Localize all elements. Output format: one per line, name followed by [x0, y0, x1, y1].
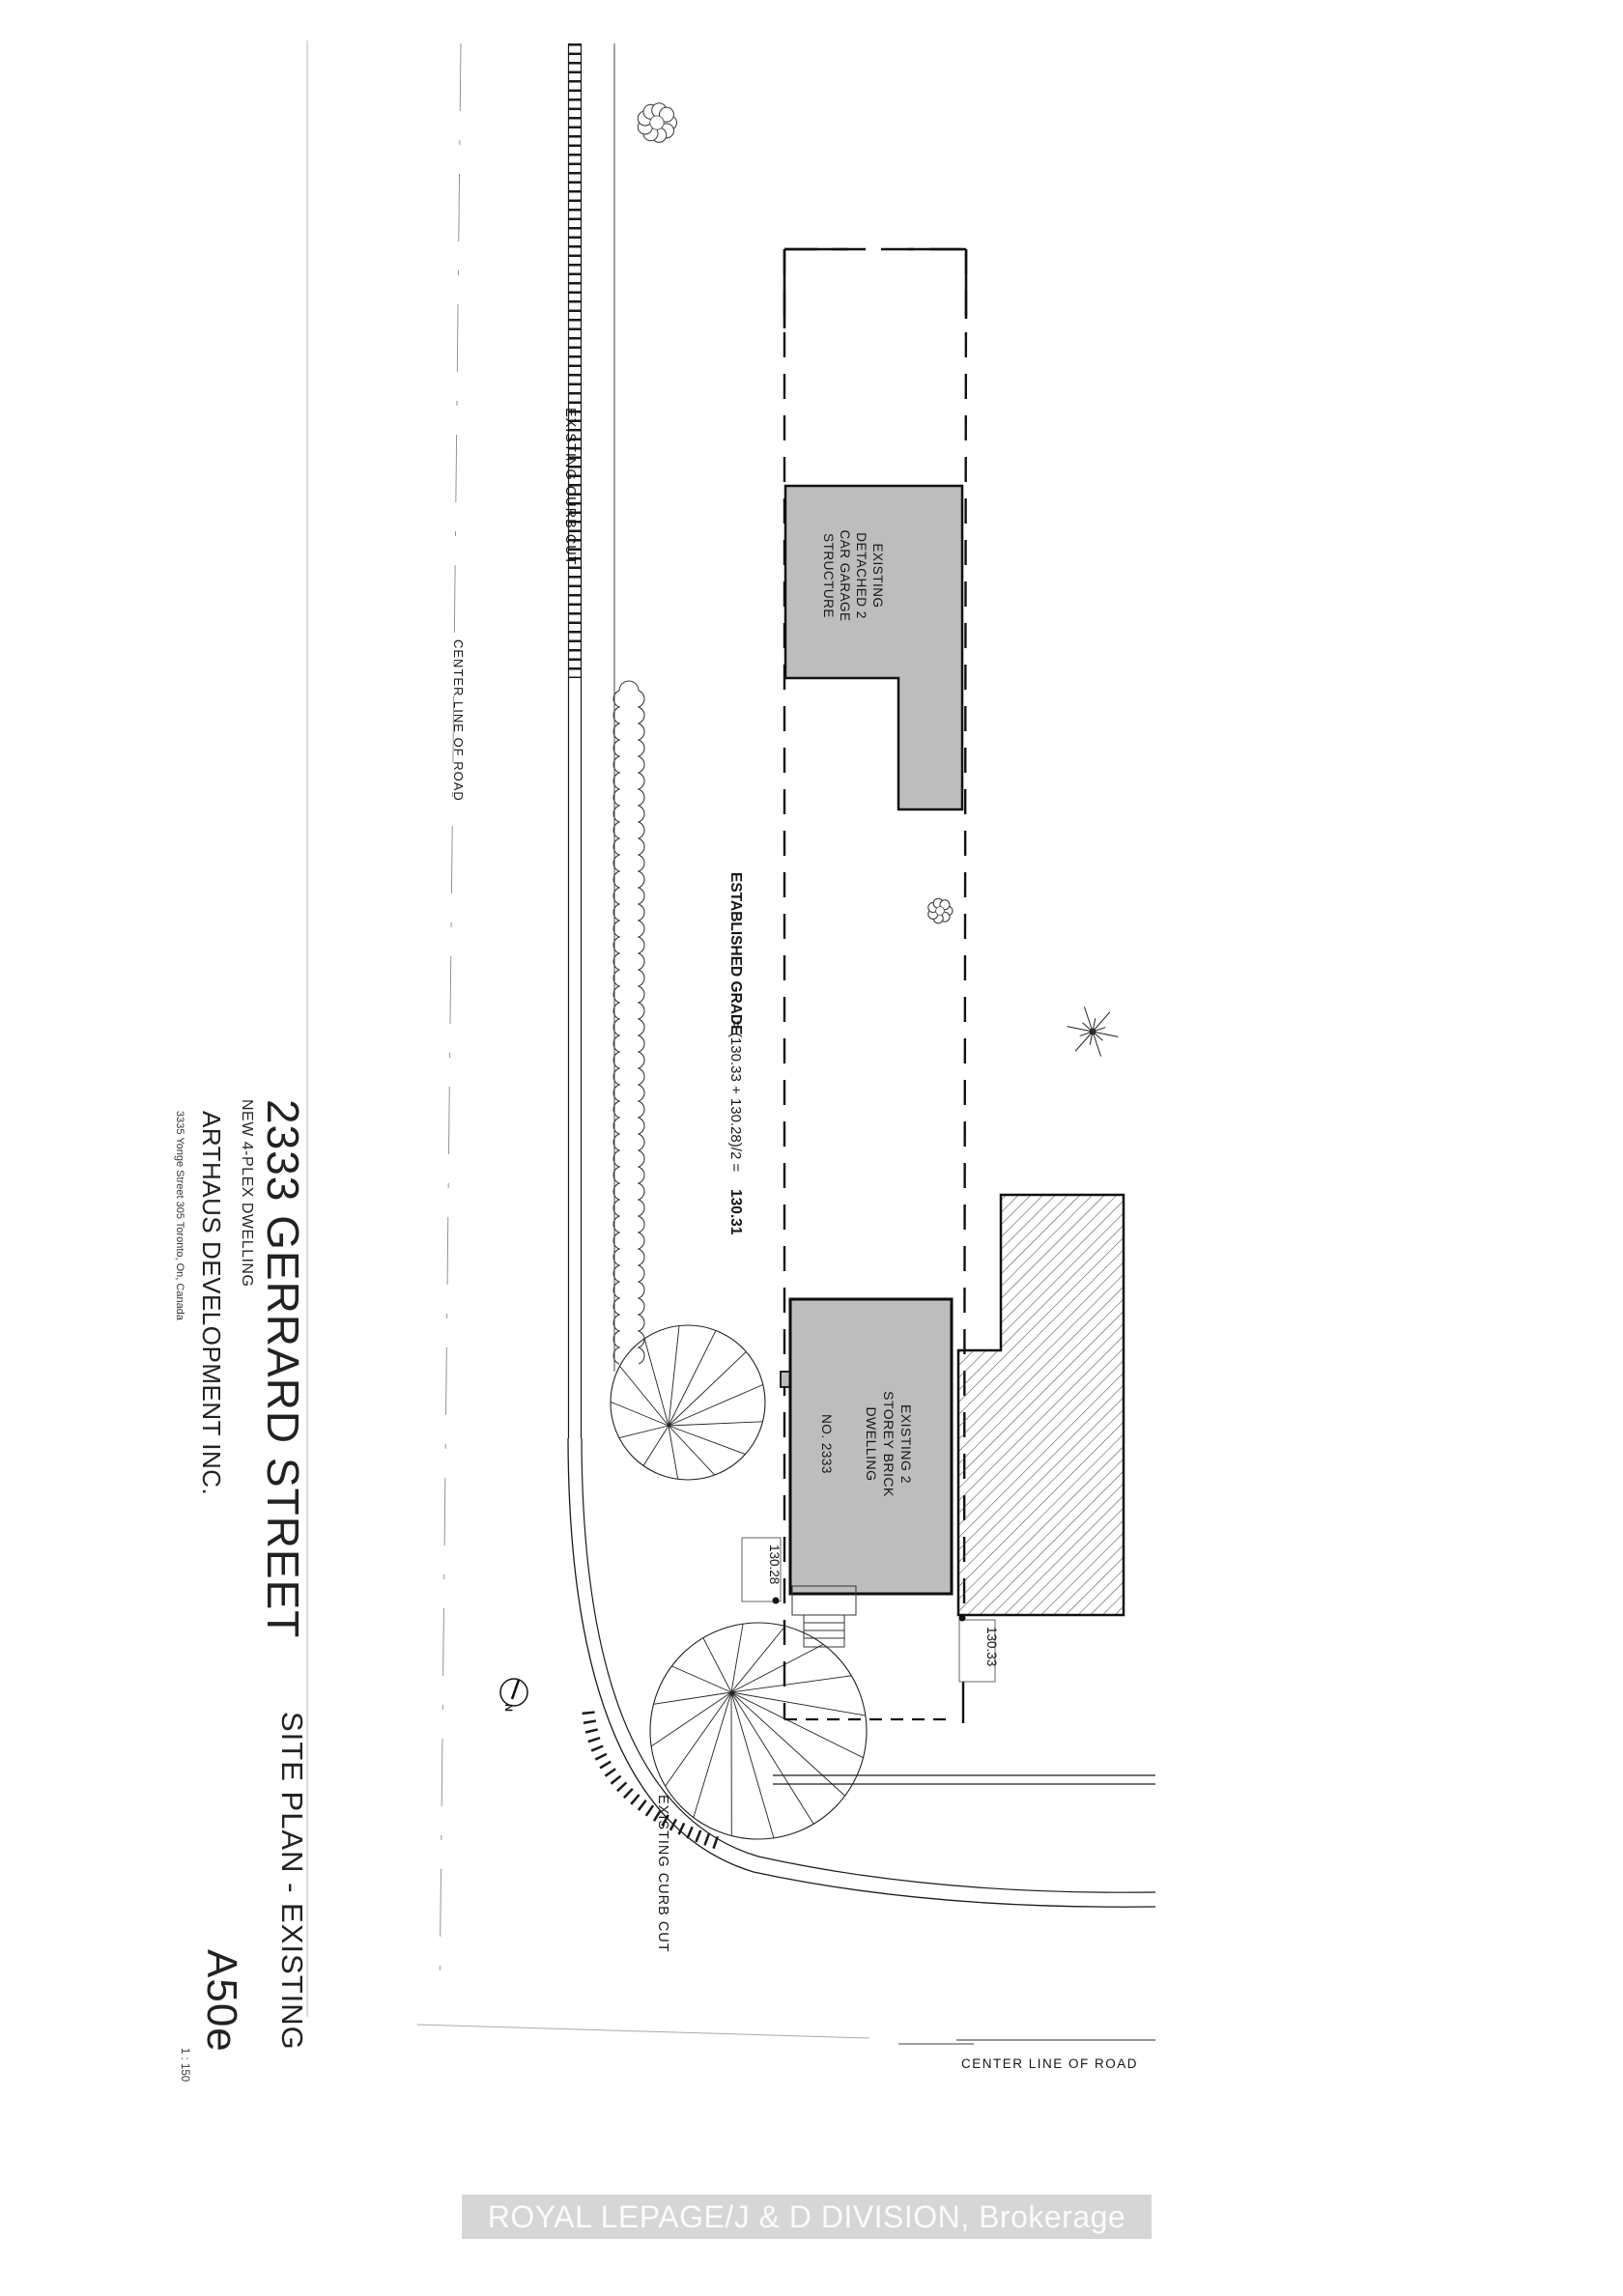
company-name: ARTHAUS DEVELOPMENT INC.: [198, 1111, 224, 1495]
project-subtitle: NEW 4-PLEX DWELLING: [239, 1099, 255, 1638]
established-grade-note: ESTABLISHED GRADE = (130.33 + 130.28)/2 …: [727, 872, 744, 1235]
road-centerline-left: CENTER LINE OF ROAD: [440, 43, 466, 1999]
shrub-mid: [928, 898, 953, 923]
curb-cut-left-label: EXISTING CURB CUT: [562, 408, 578, 566]
neighbour-building-hatched: [958, 1195, 1124, 1615]
sheet-scale: 1 : 150: [178, 2048, 189, 2082]
road-centerline-bottom-label: CENTER LINE OF ROAD: [961, 2056, 1138, 2071]
dwelling-label-line1: EXISTING 2: [898, 1404, 914, 1484]
tree-corner: [650, 1623, 867, 1839]
garage-label-line2: DETACHED 2: [854, 532, 868, 619]
dwelling-label-line2: STOREY BRICK: [881, 1391, 897, 1497]
company-address: 3335 Yonge Street 305 Toronto, On, Canad…: [174, 1111, 185, 1495]
title-block-project: 2333 GERRARD STREET NEW 4-PLEX DWELLING: [239, 1099, 305, 1638]
grade-marker-130-28: 130.28: [742, 1538, 782, 1604]
bush-starburst: [1068, 1006, 1119, 1056]
hedge-line: [613, 681, 644, 1364]
grade-value-130-28: 130.28: [767, 1545, 782, 1584]
sheet-title: SITE PLAN - EXISTING: [276, 1712, 307, 2051]
tree-front-yard: [611, 1325, 765, 1480]
established-grade-label: ESTABLISHED GRADE: [727, 872, 744, 1035]
garage-label-line4: STRUCTURE: [821, 533, 836, 618]
garage-building: EXISTING DETACHED 2 CAR GARAGE STRUCTURE: [785, 486, 962, 809]
established-grade-formula: = (130.33 + 130.28)/2 =: [727, 1020, 744, 1172]
shrub-top: [638, 103, 676, 143]
sheet-number: A50e: [199, 1949, 243, 2053]
north-label: N: [502, 1704, 514, 1712]
title-block-company: ARTHAUS DEVELOPMENT INC. 3335 Yonge Stre…: [174, 1111, 224, 1495]
project-address-title: 2333 GERRARD STREET: [259, 1099, 305, 1638]
dwelling-building: EXISTING 2 STOREY BRICK DWELLING NO. 233…: [781, 1299, 952, 1594]
grade-value-130-33: 130.33: [984, 1627, 999, 1666]
road-centerline-left-label: CENTER LINE OF ROAD: [451, 639, 466, 802]
grade-marker-130-33: 130.33: [959, 1615, 1000, 1683]
site-plan-page: CENTER LINE OF ROAD EXISTING CURB CUT EX…: [0, 0, 1623, 2296]
left-curb: EXISTING CURB CUT: [562, 43, 614, 1438]
road-centerline-bottom: CENTER LINE OF ROAD: [898, 2040, 1155, 2071]
garage-label-line1: EXISTING: [870, 543, 885, 608]
curb-cut-corner-label: EXISTING CURB CUT: [655, 1795, 670, 1953]
brokerage-watermark: ROYAL LEPAGE/J & D DIVISION, Brokerage: [462, 2195, 1152, 2239]
north-arrow: N: [500, 1679, 527, 1712]
established-grade-value: 130.31: [727, 1189, 744, 1235]
garage-label-line3: CAR GARAGE: [838, 529, 852, 621]
dwelling-number-label: NO. 2333: [819, 1414, 834, 1474]
curb-cut-hatch-corner: [588, 1712, 717, 1843]
dwelling-label-line3: DWELLING: [864, 1406, 879, 1481]
